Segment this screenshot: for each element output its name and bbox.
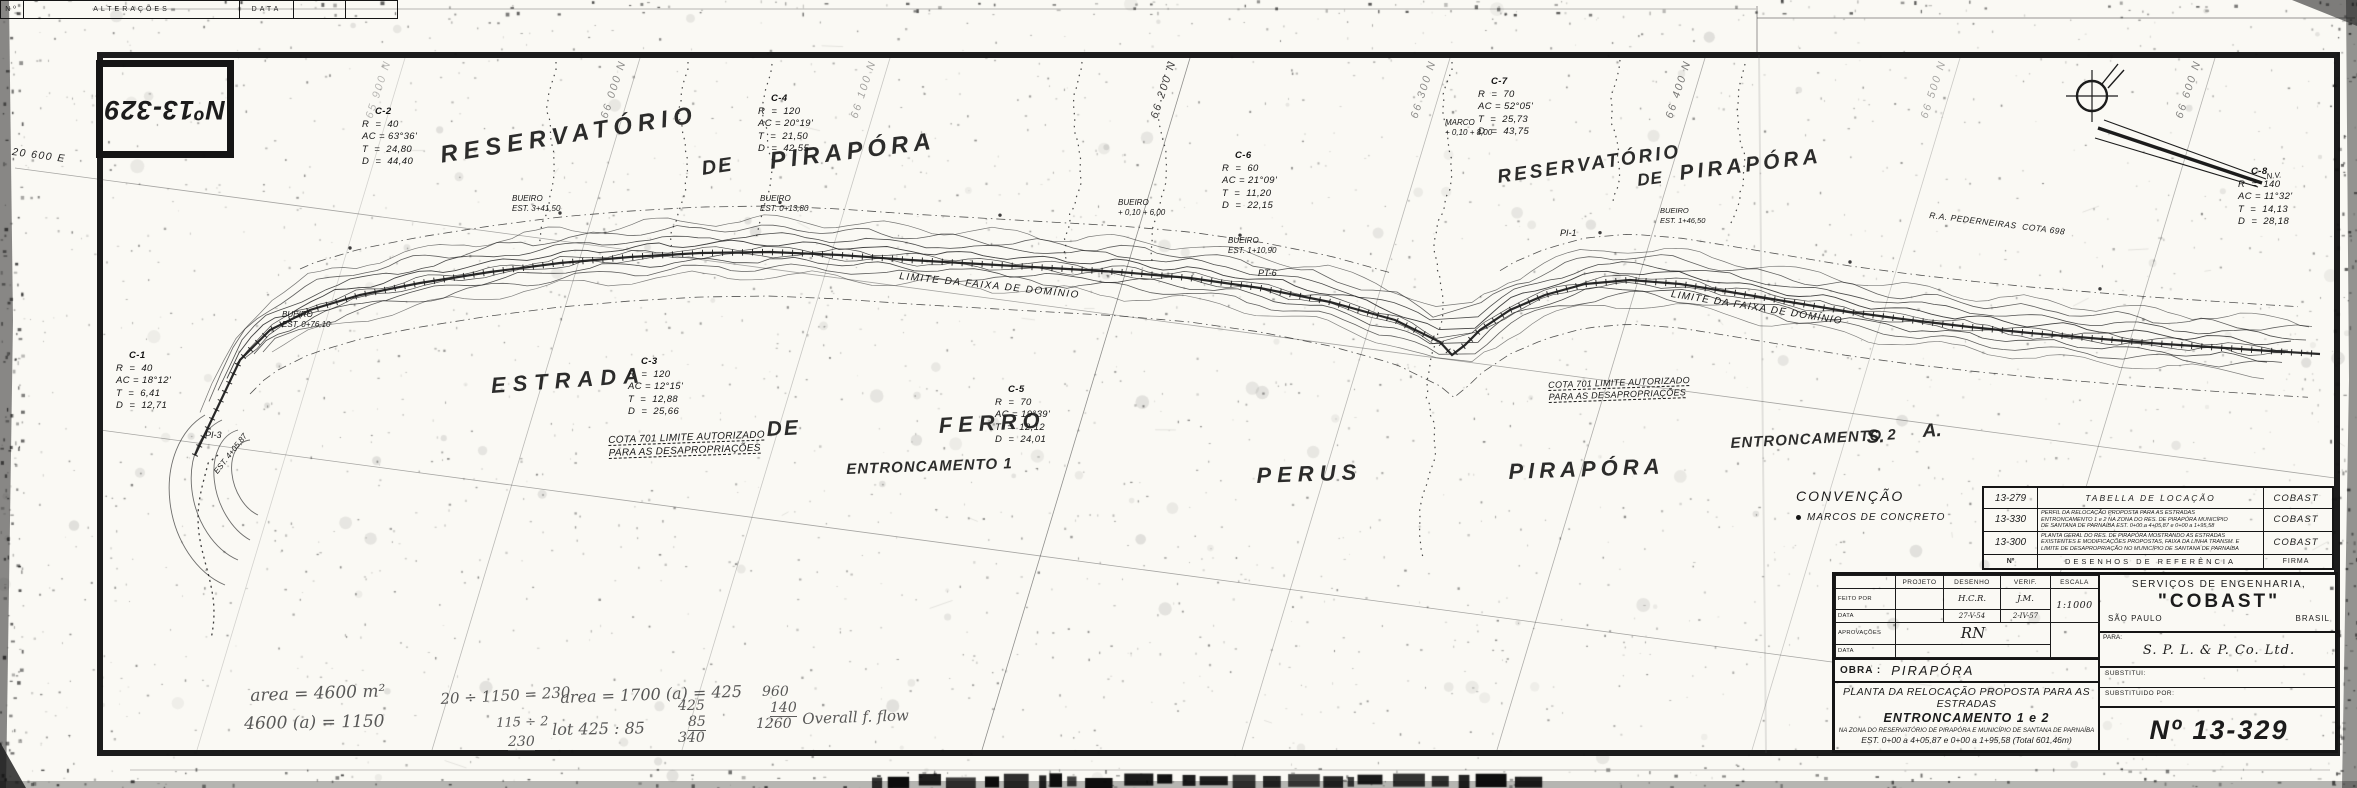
pencil-note-140: 140 <box>770 700 797 717</box>
para-cell: PARA: S. P. L. & P. Co. Ltd. <box>2100 631 2338 666</box>
substituido-cell: SUBSTITUIDO POR: <box>2100 687 2338 706</box>
curve-id: C-7 <box>1491 76 1533 89</box>
element: TABELLA DE LOCAÇÃO <box>2041 493 2260 503</box>
co3: SÃO PAULO BRASIL <box>2100 613 2338 623</box>
grid-label-66-300-n: 66 300 N <box>1409 59 1439 120</box>
element: FEITO POR H.C.R. J.M. 1:1000 <box>1836 589 2099 610</box>
verif-by: J.M. <box>2001 589 2051 610</box>
reference-description: PERFIL DA RELOCAÇÃO PROPOSTA PARA AS EST… <box>2038 509 2264 531</box>
map-label-de: DE <box>766 414 801 443</box>
curve-value: AC = 20°19' <box>758 118 813 131</box>
drawing-sheet: 65 900 N66 000 N66 100 N66 200 N66 300 N… <box>0 0 2357 788</box>
element: FIRMA <box>2264 555 2328 568</box>
map-label-r-a-pederneiras-cota-698: R.A. PEDERNEIRAS COTA 698 <box>1929 210 2066 238</box>
col-projeto: PROJETO <box>1896 576 1944 589</box>
element: EXISTENTES E MODIFICAÇÕES PROPOSTAS, FAI… <box>2041 539 2260 546</box>
curve-value: T = 12,88 <box>628 394 683 407</box>
map-label-reservat-rio: RESERVATÓRIO <box>438 99 700 171</box>
reference-number: 13-300 <box>1984 532 2038 554</box>
reference-firm: COBAST <box>2264 532 2328 554</box>
reference-header-label: DESENHOS DE REFERÊNCIA <box>2041 557 2260 566</box>
map-label-bueiro: BUEIRO EST. 1+10,90 <box>1228 236 1276 257</box>
legend-title: CONVENÇÃO <box>1796 488 1986 504</box>
obra-label: OBRA : <box>1840 665 1881 676</box>
title-line-2: ESTRADAS <box>1835 698 2098 710</box>
curve-value: D = 28,18 <box>2238 216 2292 229</box>
curve-table-c-6: C-6R = 60AC = 21°09'T = 11,20D = 22,15 <box>1222 150 1277 213</box>
title-block-right: SERVIÇOS DE ENGENHARIA, "COBAST" SÃO PAU… <box>2098 575 2338 750</box>
grid-label-66-100-n: 66 100 N <box>849 59 879 120</box>
title-line-1: PLANTA DA RELOCAÇÃO PROPOSTA PARA AS <box>1835 686 2098 698</box>
aprovacao-signature: RN <box>1896 622 2051 644</box>
pencil-note-20-1150-230: 20 ÷ 1150 = 230 <box>440 683 571 708</box>
pencil-note-340: 340 <box>678 730 705 746</box>
curve-id: C-1 <box>129 350 171 363</box>
curve-id: C-4 <box>771 93 813 106</box>
col-desenho: DESENHO <box>1944 576 2001 589</box>
curve-id: C-5 <box>1008 384 1050 397</box>
row-data-2: DATA <box>1836 644 1896 657</box>
pencil-note-area-4600-m: area = 4600 m² <box>250 681 386 706</box>
map-label-pirap-ra: PIRAPÓRA <box>1678 143 1823 188</box>
grid-label-66-500-n: 66 500 N <box>1919 59 1949 120</box>
element: Nº <box>1984 555 2038 568</box>
title-block: PROJETO DESENHO VERIF. ESCALA FEITO POR … <box>1832 572 2338 753</box>
pencil-note-960: 960 <box>762 684 789 700</box>
element: PROJETO DESENHO VERIF. ESCALA FEITO POR … <box>1836 576 2099 658</box>
curve-value: D = 25,66 <box>628 406 683 419</box>
map-label-entroncamento-1: ENTRONCAMENTO 1 <box>846 454 1013 479</box>
reference-row: 13-330PERFIL DA RELOCAÇÃO PROPOSTA PARA … <box>1984 509 2332 532</box>
map-label-bueiro: BUEIRO EST. 0+13,80 <box>760 194 808 215</box>
company-city: SÃO PAULO <box>2108 614 2163 623</box>
element: DESENHOS DE REFERÊNCIA <box>2038 555 2264 568</box>
escala-value: 1:1000 <box>2051 589 2099 622</box>
curve-value: R = 60 <box>1222 163 1277 176</box>
curve-table-c-1: C-1R = 40AC = 18°12'T = 6,41D = 12,71 <box>116 350 171 413</box>
element: MARCOS DE CONCRETO <box>1807 512 1945 523</box>
curve-value: D = 22,15 <box>1222 200 1277 213</box>
reference-header-label: FIRMA <box>2267 558 2325 565</box>
legend-convencao: CONVENÇÃO MARCOS DE CONCRETO <box>1796 488 1986 523</box>
row-data-1: DATA <box>1836 610 1896 622</box>
curve-value: AC = 52°05' <box>1478 101 1533 114</box>
obra-row: OBRA : PIRAPÓRA <box>1835 658 2098 683</box>
drawing-number-box: Nº 13-329 <box>2100 706 2338 753</box>
para-value: S. P. L. & P. Co. Ltd. <box>2100 643 2338 658</box>
reference-drawings-table: 13-279TABELLA DE LOCAÇÃOCOBAST13-330PERF… <box>1982 486 2334 570</box>
reference-description: TABELLA DE LOCAÇÃO <box>2038 488 2264 508</box>
title-sub-1: NA ZONA DO RESERVATÓRIO DE PIRAPÓRA E MU… <box>1835 727 2098 734</box>
map-label-limite-da-faixa-de-dom-nio: LIMITE DA FAIXA DE DOMÍNIO <box>1670 288 1844 328</box>
map-label-perus: PERUS <box>1256 458 1363 490</box>
company-country: BRASIL <box>2296 614 2330 623</box>
drawing-number: Nº 13-329 <box>2150 715 2289 746</box>
pencil-note-115-2: 115 ÷ 2 <box>496 714 549 731</box>
desenho-by: H.C.R. <box>1944 589 2001 610</box>
pencil-note-area-1700-a-425: area = 1700 (a) = 425 <box>560 682 742 707</box>
element <box>2051 622 2099 657</box>
map-label-ferro: FERRO <box>938 406 1046 440</box>
reference-table-header: NºDESENHOS DE REFERÊNCIAFIRMA <box>1984 555 2332 568</box>
map-label-bueiro: BUEIRO EST. 3+41,50 <box>512 194 560 215</box>
legend-item-marcos: MARCOS DE CONCRETO <box>1796 512 1986 523</box>
curve-id: C-3 <box>641 356 683 369</box>
curve-table-c-8: C-8R = 140AC = 11°32'T = 14,13D = 28,18 <box>2238 166 2292 229</box>
reference-row: 13-279TABELLA DE LOCAÇÃOCOBAST <box>1984 488 2332 509</box>
reference-firm: COBAST <box>2264 509 2328 531</box>
map-label-marco: MARCO + 0,10 + 8,00 <box>1445 118 1492 139</box>
curve-id: C-6 <box>1235 150 1277 163</box>
pencil-note-425: 425 <box>678 698 705 714</box>
curve-id: C-2 <box>375 106 417 119</box>
curve-value: D = 44,40 <box>362 156 417 169</box>
drawing-title: PLANTA DA RELOCAÇÃO PROPOSTA PARA AS EST… <box>1835 683 2098 753</box>
title-line-3: ENTRONCAMENTO 1 e 2 <box>1835 711 2098 725</box>
map-label-cota-701-limite-autorizado: COTA 701 LIMITE AUTORIZADO PARA AS DESAP… <box>1548 375 1691 403</box>
personnel-table: PROJETO DESENHO VERIF. ESCALA FEITO POR … <box>1835 575 2098 658</box>
reference-firm: COBAST <box>2264 488 2328 508</box>
company-name: "COBAST" <box>2100 591 2338 613</box>
element: DE SANTANA DE PARNAÍBA EST. 0+00 a 4+05,… <box>2041 523 2260 530</box>
para-label: PARA: <box>2103 634 2122 641</box>
col-escala: ESCALA <box>2051 576 2099 589</box>
curve-value: T = 6,41 <box>116 388 171 401</box>
map-label-bueiro: BUEIRO EST. 0+76,10 <box>282 310 330 331</box>
substitui-cell: SUBSTITUI: <box>2100 666 2338 687</box>
reference-number: 13-330 <box>1984 509 2038 531</box>
curve-value: R = 40 <box>116 363 171 376</box>
map-label-cota-701-limite-autorizado: COTA 701 LIMITE AUTORIZADO PARA AS DESAP… <box>608 429 766 460</box>
curve-value: R = 140 <box>2238 179 2292 192</box>
curve-value: T = 24,80 <box>362 144 417 157</box>
grid-label-66-200-n: 66 200 N <box>1149 59 1179 120</box>
grid-label-20-600-e: 20 600 E <box>11 146 66 165</box>
map-label-pirap-ra: PIRAPÓRA <box>1508 453 1665 487</box>
map-label-de: DE <box>700 152 735 182</box>
map-label-pi-1: PI-1 <box>1560 228 1577 240</box>
curve-value: AC = 18°12' <box>116 375 171 388</box>
curve-value: T = 14,13 <box>2238 204 2292 217</box>
pencil-note-lot-425-85: lot 425 : 85 <box>552 718 645 739</box>
map-label-bueiro: BUEIRO EST. 1+46,50 <box>1660 206 1705 226</box>
row-aprovacoes: APROVAÇÕES <box>1836 622 1896 644</box>
element: PERFIL DA RELOCAÇÃO PROPOSTA PARA AS EST… <box>2041 510 2260 517</box>
map-label-de: DE <box>1636 167 1664 192</box>
map-label-limite-da-faixa-de-dom-nio: LIMITE DA FAIXA DE DOMÍNIO <box>899 270 1081 302</box>
map-label-pi-3: PI-3 <box>205 430 222 442</box>
reference-row: 13-300PLANTA GERAL DO RES. DE PIRAPÓRA M… <box>1984 532 2332 555</box>
title-sub-2: EST. 0+00 a 4+05,87 e 0+00 a 1+95,58 (To… <box>1835 735 2098 745</box>
ptab: PROJETO DESENHO VERIF. ESCALA FEITO POR … <box>1835 575 2099 658</box>
corner-stamp-number: Nº13-329 <box>104 94 225 125</box>
curve-value: R = 70 <box>1478 89 1533 102</box>
curve-value: AC = 21°09' <box>1222 175 1277 188</box>
curve-value: AC = 11°32' <box>2238 191 2292 204</box>
grid-label-66-600-n: 66 600 N <box>2174 59 2204 120</box>
map-label-pt-6: PT-6 <box>1258 268 1277 280</box>
element: LIMITE DE DESAPROPRIAÇÃO NO MUNICÍPIO DE… <box>2041 546 2260 553</box>
element: APROVAÇÕES RN <box>1836 622 2099 644</box>
map-label-a: A. <box>1922 419 1942 445</box>
curve-value: R = 120 <box>758 106 813 119</box>
corner-stamp: Nº13-329 <box>96 60 234 158</box>
curve-value: D = 12,71 <box>116 400 171 413</box>
curve-table-c-2: C-2R = 40AC = 63°36'T = 24,80D = 44,40 <box>362 106 417 169</box>
curve-value: R = 40 <box>362 119 417 132</box>
reference-description: PLANTA GERAL DO RES. DE PIRAPÓRA MOSTRAN… <box>2038 532 2264 554</box>
element <box>1896 610 1944 622</box>
verif-date: 2-IV-57 <box>2001 610 2051 622</box>
col-verif: VERIF. <box>2001 576 2051 589</box>
company-line1: SERVIÇOS DE ENGENHARIA, <box>2100 579 2338 590</box>
desenho-date: 27-V-54 <box>1944 610 2001 622</box>
element <box>1896 644 2051 657</box>
element <box>1896 589 1944 610</box>
pencil-note-230: 230 <box>508 734 535 751</box>
row-feito-por: FEITO POR <box>1836 589 1896 610</box>
element <box>1836 576 1896 589</box>
curve-value: AC = 63°36' <box>362 131 417 144</box>
concrete-mark-icon <box>1796 515 1801 520</box>
company-cell: SERVIÇOS DE ENGENHARIA, "COBAST" SÃO PAU… <box>2100 575 2338 631</box>
reference-number: 13-279 <box>1984 488 2038 508</box>
grid-label-66-400-n: 66 400 N <box>1664 59 1694 120</box>
element: PROJETO DESENHO VERIF. ESCALA <box>1836 576 2099 589</box>
map-label-n-v: N.V. <box>2266 170 2282 182</box>
pencil-note-overall-f-flow: Overall f. flow <box>802 706 909 728</box>
obra-value: PIRAPÓRA <box>1891 663 1974 678</box>
reference-header-label: Nº <box>1987 558 2034 565</box>
map-label-bueiro: BUEIRO + 0,10 + 6,00 <box>1118 198 1165 219</box>
pencil-note-85: 85 <box>688 714 706 731</box>
pencil-note-4600-a-1150: 4600 (a) = 1150 <box>244 712 385 734</box>
map-label-estrada: ESTRADA <box>490 361 647 400</box>
curve-value: T = 11,20 <box>1222 188 1277 201</box>
pencil-note-1260: 1260 <box>756 716 792 732</box>
